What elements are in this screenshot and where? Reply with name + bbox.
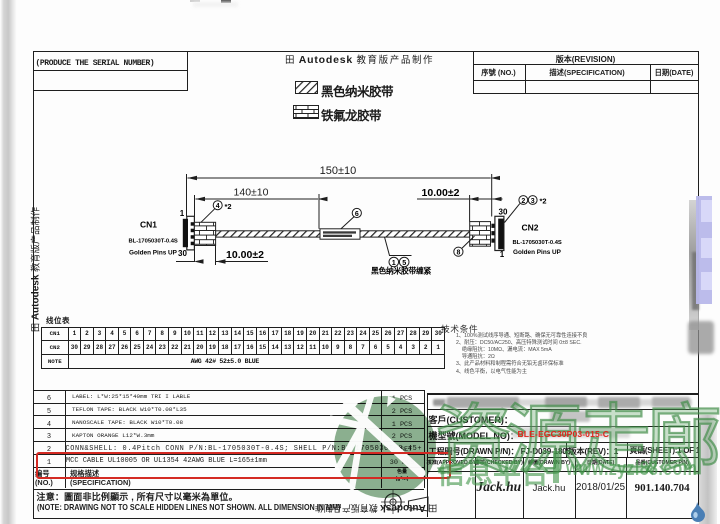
svg-text:*2: *2 [540,197,547,206]
svg-text:CN1: CN1 [140,220,157,230]
svg-text:30: 30 [499,208,508,217]
svg-text:150±10: 150±10 [320,165,357,177]
svg-text:Golden Pins UP: Golden Pins UP [129,250,178,257]
svg-text:1: 1 [180,209,185,218]
svg-text:8: 8 [456,250,460,257]
svg-text:10.00±2: 10.00±2 [226,249,264,261]
svg-text:4: 4 [216,203,220,210]
svg-text:2: 2 [521,198,525,205]
svg-text:BL-1705030T-0.4S: BL-1705030T-0.4S [513,240,562,246]
svg-text:30: 30 [178,249,187,258]
svg-text:6: 6 [355,211,359,218]
svg-text:10.00±2: 10.00±2 [422,187,460,199]
svg-text:黑色纳米胶带缠紧: 黑色纳米胶带缠紧 [371,266,431,276]
svg-text:BL-1705030T-0.4S: BL-1705030T-0.4S [129,239,178,245]
svg-text:140±10: 140±10 [234,187,269,199]
svg-text:Golden Pins UP: Golden Pins UP [513,249,562,256]
svg-text:*2: *2 [225,202,232,211]
svg-text:3: 3 [531,198,535,205]
svg-text:CN2: CN2 [522,223,539,233]
svg-text:1: 1 [500,250,505,259]
